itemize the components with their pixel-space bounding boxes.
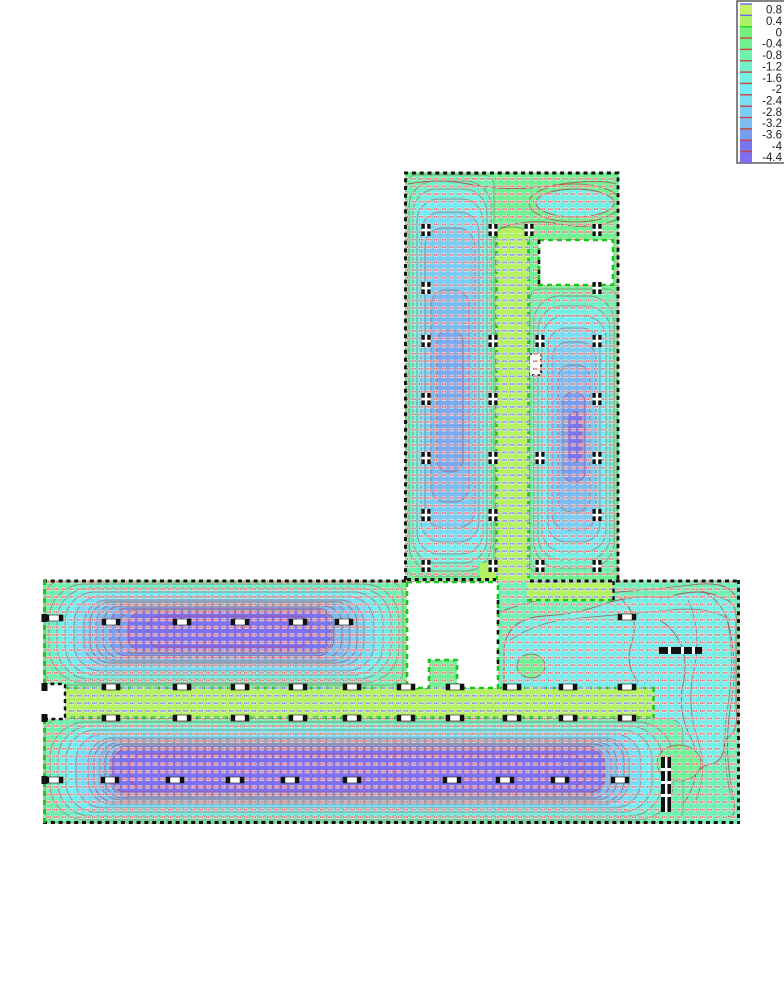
svg-text:-2.8: -2.8: [762, 107, 782, 119]
svg-text:-0.4: -0.4: [762, 39, 782, 51]
svg-text:-1.6: -1.6: [762, 73, 782, 85]
svg-text:-2.4: -2.4: [762, 95, 782, 107]
svg-text:-2: -2: [772, 84, 782, 96]
svg-text:0: 0: [776, 27, 782, 39]
svg-text:-1.2: -1.2: [762, 61, 782, 73]
svg-text:-4: -4: [772, 141, 783, 153]
svg-text:-3.2: -3.2: [762, 118, 782, 130]
svg-text:0.8: 0.8: [766, 5, 782, 17]
svg-text:-0.8: -0.8: [762, 50, 782, 62]
svg-text:-4.4: -4.4: [762, 152, 782, 164]
svg-text:-3.6: -3.6: [762, 130, 782, 142]
svg-text:0.4: 0.4: [766, 16, 783, 28]
